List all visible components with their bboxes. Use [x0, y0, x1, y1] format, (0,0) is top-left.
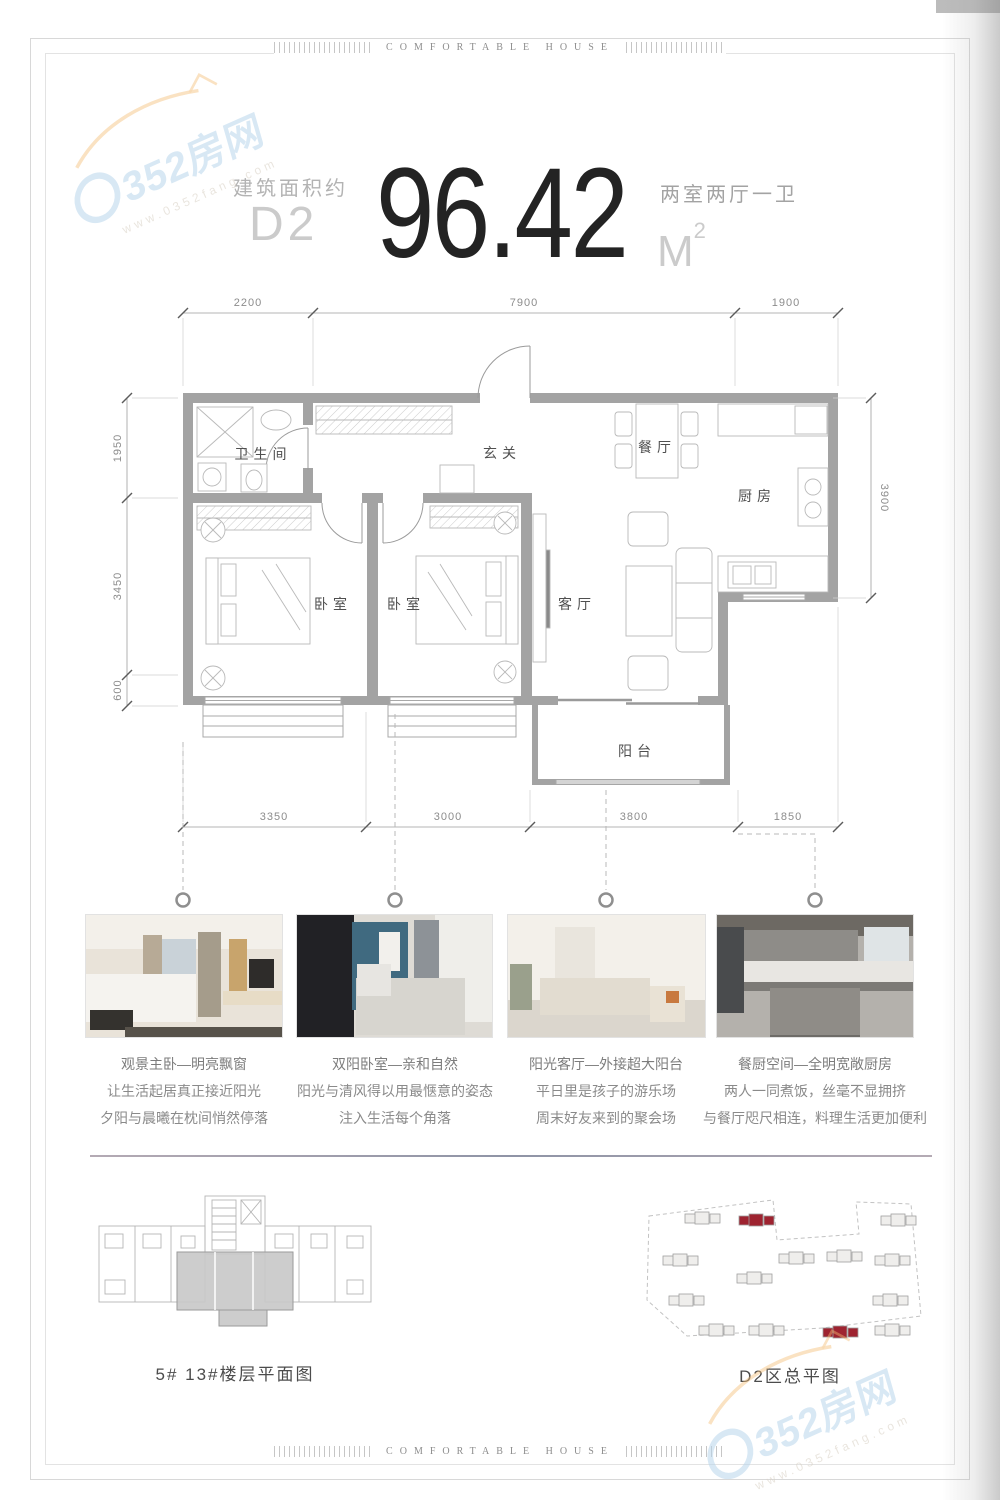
hatch-ornament	[626, 42, 726, 53]
room-label-entry: 玄关	[483, 445, 521, 461]
dim-top-3: 1900	[772, 297, 800, 309]
photo-rings	[177, 894, 822, 907]
highlight-building	[823, 1326, 858, 1338]
unit-sup: 2	[694, 218, 706, 243]
border-title: COMFORTABLE HOUSE	[384, 42, 616, 53]
unit-code: D2	[249, 197, 318, 252]
hatch-ornament	[274, 42, 374, 53]
floor-diagram-label: 5# 13#楼层平面图	[85, 1360, 385, 1385]
hatch-ornament	[274, 1446, 374, 1457]
photo-leaders	[183, 714, 815, 890]
feature-title: 观景主卧—明亮飘窗	[64, 1051, 304, 1078]
section-divider	[90, 1155, 932, 1157]
feature-caption-second-bedroom: 双阳卧室—亲和自然 阳光与清风得以用最惬意的姿态 注入生活每个角落	[275, 1051, 515, 1132]
dim-bottom-2: 3000	[434, 811, 462, 823]
poster-page: COMFORTABLE HOUSE COMFORTABLE HOUSE 建筑面积…	[0, 0, 1000, 1500]
layout-label: 两室两厅一卫	[660, 178, 798, 207]
room-label-kitchen: 厨房	[738, 488, 776, 504]
site-plan	[635, 1188, 945, 1358]
feature-caption-master-bedroom: 观景主卧—明亮飘窗 让生活起居真正接近阳光 夕阳与晨曦在枕间悄然停落	[64, 1051, 304, 1132]
room-label-bedroom-1: 卧室	[314, 596, 352, 612]
site-plan-label: D2区总平图	[635, 1362, 945, 1387]
feature-caption-living-room: 阳光客厅—外接超大阳台 平日里是孩子的游乐场 周末好友来到的聚会场	[486, 1051, 726, 1132]
dim-bottom-3: 3800	[620, 811, 648, 823]
feature-line: 注入生活每个角落	[275, 1105, 515, 1132]
feature-line: 平日里是孩子的游乐场	[486, 1078, 726, 1105]
feature-line: 两人一同煮饭，丝毫不显拥挤	[695, 1078, 935, 1105]
highlight-building	[739, 1214, 774, 1226]
area-value: 96.42	[376, 150, 626, 278]
photo-master-bedroom	[86, 915, 282, 1037]
feature-line: 阳光与清风得以用最惬意的姿态	[275, 1078, 515, 1105]
photo-kitchen	[717, 915, 913, 1037]
dim-top-1: 2200	[234, 297, 262, 309]
photo-second-bedroom	[297, 915, 492, 1037]
feature-title: 阳光客厅—外接超大阳台	[486, 1051, 726, 1078]
hatch-ornament	[626, 1446, 726, 1457]
feature-line: 让生活起居真正接近阳光	[64, 1078, 304, 1105]
dim-bottom-4: 1850	[774, 811, 802, 823]
room-label-balcony: 阳台	[618, 743, 656, 759]
feature-line: 与餐厅咫尺相连，料理生活更加便利	[695, 1105, 935, 1132]
dim-bottom-1: 3350	[260, 811, 288, 823]
room-label-bedroom-2: 卧室	[387, 596, 425, 612]
page-edge-corner	[936, 0, 1000, 13]
unit-m: M	[657, 227, 694, 276]
dim-left-1: 1950	[112, 434, 124, 462]
feature-title: 餐厨空间—全明宽敞厨房	[695, 1051, 935, 1078]
area-unit: M2	[657, 218, 706, 277]
feature-caption-kitchen: 餐厨空间—全明宽敞厨房 两人一同煮饭，丝毫不显拥挤 与餐厅咫尺相连，料理生活更加…	[695, 1051, 935, 1132]
floor-plan: 卫生间 玄关 餐厅 厨房 卧室 卧室 客厅 阳台	[95, 278, 905, 910]
border-title: COMFORTABLE HOUSE	[384, 1446, 616, 1457]
feature-title: 双阳卧室—亲和自然	[275, 1051, 515, 1078]
top-border-band: COMFORTABLE HOUSE	[274, 40, 726, 54]
dim-left-2: 3450	[112, 572, 124, 600]
dim-right-1: 3900	[878, 484, 890, 512]
building-floor-diagram	[85, 1192, 385, 1352]
room-label-bathroom: 卫生间	[235, 446, 292, 462]
room-label-dining: 餐厅	[638, 439, 676, 455]
photo-living-room	[508, 915, 705, 1037]
dim-top-2: 7900	[510, 297, 538, 309]
feature-line: 周末好友来到的聚会场	[486, 1105, 726, 1132]
highlighted-unit	[177, 1252, 293, 1326]
feature-line: 夕阳与晨曦在枕间悄然停落	[64, 1105, 304, 1132]
room-label-living: 客厅	[558, 596, 596, 612]
bottom-border-band: COMFORTABLE HOUSE	[274, 1444, 726, 1458]
dim-left-3: 600	[112, 679, 124, 700]
site-buildings	[663, 1212, 916, 1338]
